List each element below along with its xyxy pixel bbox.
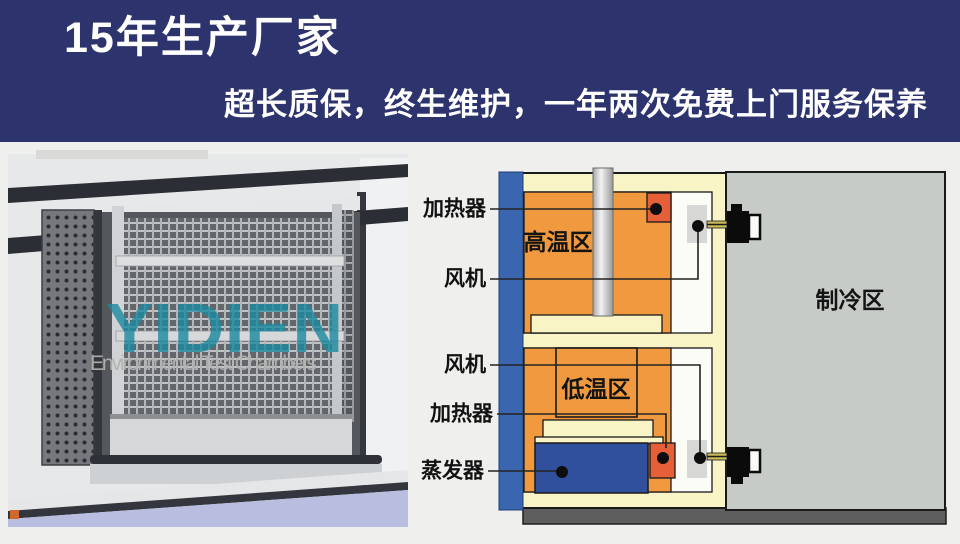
fan-bottom-dot <box>694 452 706 464</box>
structure-diagram: 加热器 风机 风机 加热器 蒸发器 高温区 低温区 制冷区 <box>408 150 950 544</box>
fan-top-dot <box>692 220 704 232</box>
chamber-photo: YIDIEN Environmental Test Chambers <box>8 150 408 527</box>
heater-bottom-dot <box>657 452 669 464</box>
cold-pedestal-upper <box>543 420 653 438</box>
header-banner: 15年生产厂家 超长质保，终生维护，一年两次免费上门服务保养 <box>0 0 960 142</box>
zone-hot-label: 高温区 <box>524 229 593 255</box>
structure-diagram-graphic: 加热器 风机 风机 加热器 蒸发器 高温区 低温区 制冷区 <box>408 150 950 544</box>
base-box-edge <box>110 414 352 419</box>
photo-watermark-subtitle: Environmental Test Chambers <box>90 352 318 375</box>
hot-pedestal <box>531 315 662 333</box>
evaporator-block <box>535 443 648 493</box>
shelf-upper <box>116 256 344 266</box>
page-subtitle: 超长质保，终生维护，一年两次免费上门服务保养 <box>224 88 928 122</box>
callout-heater-bottom: 加热器 <box>429 402 494 426</box>
duct-pipe <box>593 168 613 316</box>
zone-cooling-label: 制冷区 <box>816 287 885 313</box>
floor-detail <box>10 510 19 519</box>
callout-evaporator: 蒸发器 <box>421 459 485 483</box>
frame-blue-strip <box>499 172 523 510</box>
base-trim-dark <box>90 455 382 464</box>
evaporator-dot <box>556 466 568 478</box>
wall-strip <box>36 150 208 159</box>
panel-edge <box>94 210 102 465</box>
heater-top-dot <box>650 203 662 215</box>
callout-heater-top: 加热器 <box>422 197 487 221</box>
callout-fan-bottom: 风机 <box>444 353 486 377</box>
perforated-panel <box>42 210 94 465</box>
base-box <box>110 414 352 458</box>
page-title: 15年生产厂家 <box>64 17 341 60</box>
zone-cold-label: 低温区 <box>561 376 631 402</box>
chamber-photo-graphic: YIDIEN Environmental Test Chambers <box>8 150 408 527</box>
callout-fan-top: 风机 <box>444 267 486 291</box>
